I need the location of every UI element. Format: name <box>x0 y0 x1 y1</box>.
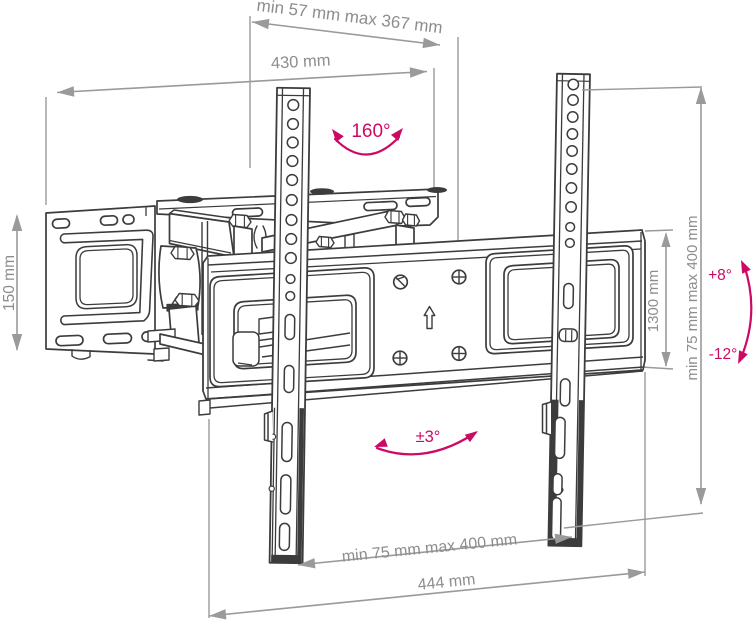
svg-text:150 mm: 150 mm <box>1 255 18 311</box>
svg-text:160°: 160° <box>351 121 390 142</box>
svg-text:1300 mm: 1300 mm <box>645 270 662 333</box>
svg-text:min 75 mm max 400 mm: min 75 mm max 400 mm <box>341 531 518 565</box>
svg-text:min 75 mm max 400 mm: min 75 mm max 400 mm <box>684 215 701 380</box>
svg-text:-12°: -12° <box>709 346 738 363</box>
svg-text:±3°: ±3° <box>416 428 441 446</box>
svg-text:+8°: +8° <box>708 267 732 284</box>
svg-text:430 mm: 430 mm <box>270 51 331 72</box>
svg-text:min 57 mm max 367 mm: min 57 mm max 367 mm <box>256 0 444 37</box>
